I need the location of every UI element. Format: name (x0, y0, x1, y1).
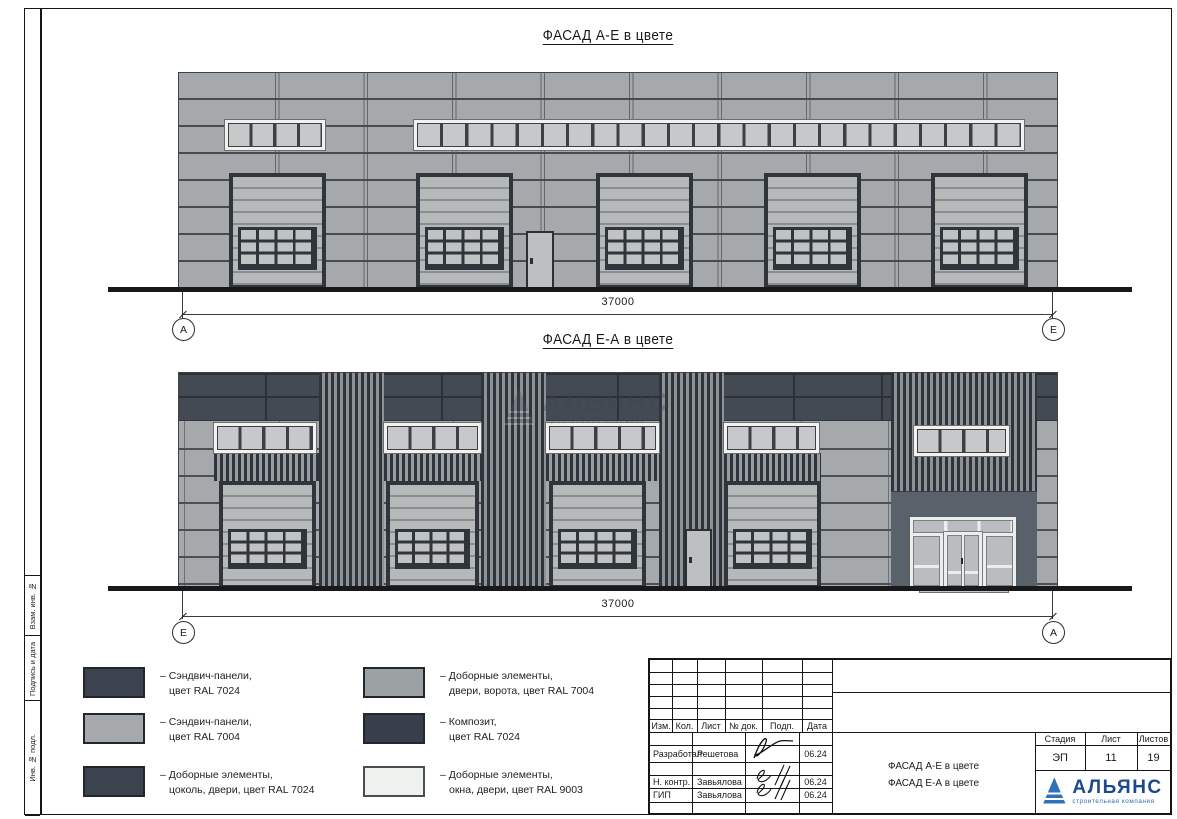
stage-value: ЭП (1035, 745, 1085, 770)
watermark-sub: строительная компания (542, 418, 670, 425)
ribbon-window-long (414, 120, 1024, 150)
sidebar-label: Инв. № подл. (28, 734, 37, 782)
col-ndok: № док. (725, 719, 762, 732)
signature-gip (749, 777, 797, 802)
ribbon-window-5 (914, 426, 1009, 456)
date-gip: 06.24 (799, 788, 832, 802)
col-list: Лист (697, 719, 725, 732)
sheet-frame-line (40, 8, 42, 814)
legend-item: – Сэндвич-панели,цвет RAL 7024 (160, 669, 360, 698)
sheets-total: 19 (1137, 745, 1170, 770)
legend-swatch-composite (363, 713, 425, 744)
col-data: Дата (802, 719, 832, 732)
col-podp: Подп. (762, 719, 802, 732)
legend-item: – Сэндвич-панели,цвет RAL 7004 (160, 715, 360, 744)
storefront-glazing (909, 516, 1017, 590)
col-izm: Изм. (650, 719, 672, 732)
entrance-door (685, 529, 712, 589)
door-handle (961, 558, 964, 564)
garage-door-windows (425, 227, 504, 270)
logo-triangle-icon (1042, 778, 1066, 806)
legend-item: – Доборные элементы,двери, ворота, цвет … (440, 669, 660, 698)
ribbon-window-2 (384, 423, 481, 453)
sidebar-cell-podpis: Подпись и дата (25, 635, 40, 701)
col-kol: Кол. (672, 719, 697, 732)
name-developer: Решетова (694, 745, 745, 762)
dimension-value: 37000 (558, 296, 678, 308)
drawing-name: ФАСАД А-Е в цвете ФАСАД Е-А в цвете (836, 750, 1031, 800)
ground-line (108, 287, 1132, 292)
legend-item: – Доборные элементы,окна, двери, цвет RA… (440, 768, 660, 797)
garage-door-windows (558, 529, 637, 569)
sidelight-left (913, 536, 940, 586)
slat-band (724, 453, 821, 481)
vertical-slat-strip (319, 373, 384, 589)
legend-swatch-ral7004 (83, 713, 145, 744)
name-ncontrol: Завьялова (694, 775, 745, 788)
garage-door-2 (386, 481, 479, 589)
axis-marker-a: А (1042, 621, 1065, 644)
company-logo: АЛЬЯНС строительная компания (1036, 771, 1169, 812)
facade-ea-title: ФАСАД Е-А в цвете (473, 331, 743, 348)
facade-ea-drawing: АЛЬЯНС строительная компания (178, 372, 1058, 588)
slat-band (384, 453, 481, 481)
ground-line (108, 586, 1132, 591)
garage-door-windows (733, 529, 812, 569)
stage-label: Стадия (1035, 732, 1085, 745)
role-ncontrol: Н. контр. (650, 775, 692, 788)
door-leaf-right (964, 535, 979, 586)
legend-item: – Доборные элементы,цоколь, двери, цвет … (160, 768, 370, 797)
garage-door-3 (596, 173, 693, 289)
sheets-label: Листов (1137, 732, 1170, 745)
legend-swatch-ral7024-trim (83, 766, 145, 797)
sheet-label: Лист (1085, 732, 1137, 745)
garage-door-4 (724, 481, 821, 589)
double-glass-door (943, 531, 983, 589)
role-developer: Разработал (650, 745, 692, 762)
ribbon-window-short (225, 120, 325, 150)
dimension-line (183, 616, 1053, 617)
entrance-door (526, 231, 554, 289)
legend-item: – Композит,цвет RAL 7024 (440, 715, 660, 744)
legend-swatch-ral9003 (363, 766, 425, 797)
axis-marker-e: Е (172, 621, 195, 644)
sidebar-cell-inv: Инв. № подл. (25, 700, 40, 816)
date-developer: 06.24 (799, 745, 832, 762)
sidebar-label: Взам. инв. № (28, 582, 37, 629)
ribbon-window-4 (724, 423, 819, 453)
garage-door-1 (229, 173, 326, 289)
title-block: Изм. Кол. Лист № док. Подп. Дата Разрабо… (648, 658, 1172, 815)
garage-door-windows (238, 227, 317, 270)
facade-ae-title: ФАСАД А-Е в цвете (473, 27, 743, 44)
garage-door-4 (764, 173, 861, 289)
dimension-value: 37000 (558, 598, 678, 610)
garage-door-windows (228, 529, 307, 569)
garage-door-3 (549, 481, 646, 589)
signature-developer (747, 732, 799, 762)
garage-door-1 (219, 481, 316, 589)
slat-band (214, 453, 319, 481)
company-name: АЛЬЯНС (1072, 778, 1162, 797)
axis-marker-e: Е (1042, 318, 1065, 341)
garage-door-2 (416, 173, 513, 289)
legend-swatch-ral7004-trim (363, 667, 425, 698)
garage-door-windows (773, 227, 852, 270)
role-gip: ГИП (650, 788, 692, 802)
name-gip: Завьялова (694, 788, 745, 802)
garage-door-5 (931, 173, 1028, 289)
slat-band (546, 453, 659, 481)
sidebar-label: Подпись и дата (28, 642, 37, 696)
logo-triangle-icon (504, 389, 534, 425)
sheet-number: 11 (1085, 745, 1137, 770)
axis-marker-a: А (172, 318, 195, 341)
sidelight-right (986, 536, 1013, 586)
legend-swatch-ral7024 (83, 667, 145, 698)
dimension-line (183, 314, 1053, 315)
facade-ae-drawing (178, 72, 1058, 289)
garage-door-windows (395, 529, 470, 569)
company-tagline: строительная компания (1072, 798, 1162, 805)
sidebar-cell-vzam: Взам. инв. № (25, 575, 40, 636)
watermark-name: АЛЬЯНС (542, 389, 670, 416)
date-ncontrol: 06.24 (799, 775, 832, 788)
garage-door-windows (605, 227, 684, 270)
drawing-sheet: Взам. инв. № Подпись и дата Инв. № подл.… (0, 0, 1177, 819)
company-watermark: АЛЬЯНС строительная компания (504, 389, 670, 425)
ribbon-window-3 (546, 423, 659, 453)
ribbon-window-1 (214, 423, 316, 453)
main-entrance-portal (891, 491, 1037, 589)
garage-door-windows (940, 227, 1019, 270)
